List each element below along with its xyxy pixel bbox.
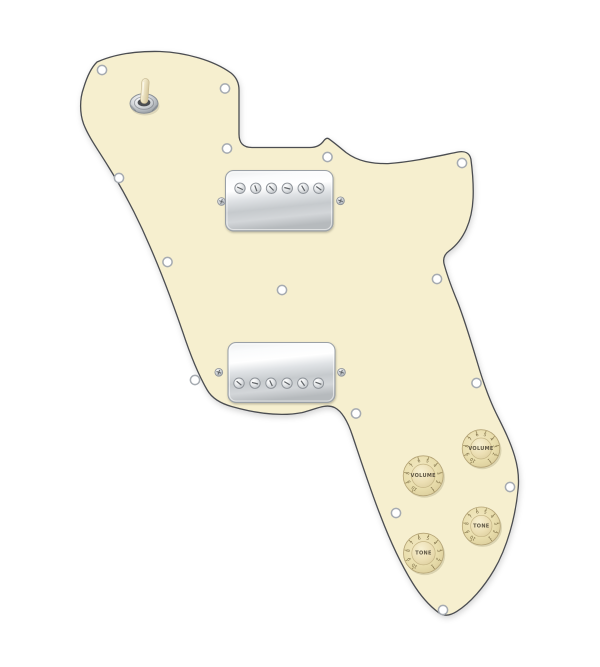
switch-lever-tip xyxy=(140,78,149,103)
screw-hole xyxy=(190,375,199,384)
pickup-cover xyxy=(226,171,334,232)
screw-hole xyxy=(391,508,400,517)
knob-label: TONE xyxy=(473,523,490,529)
screw-hole xyxy=(505,482,514,491)
screw-hole xyxy=(163,257,172,266)
pickup-mount-screw xyxy=(338,368,346,376)
screw-hole xyxy=(457,158,466,167)
switch-lever xyxy=(140,78,149,103)
screw-hole xyxy=(432,274,441,283)
pickup-cover xyxy=(228,343,335,403)
screw-hole xyxy=(220,84,229,93)
screw-hole xyxy=(114,173,123,182)
screw-hole xyxy=(438,605,447,614)
screw-hole xyxy=(323,152,332,161)
pickup-mount-screw xyxy=(218,198,226,206)
screw-hole xyxy=(351,409,360,418)
screw-hole xyxy=(277,285,286,294)
pickup-mount-screw xyxy=(337,197,345,205)
screw-hole xyxy=(222,144,231,153)
pickup-mount-screw xyxy=(215,368,223,376)
product-photo-pickguard: 12345678910VOLUME12345678910VOLUME123456… xyxy=(0,0,600,667)
knob-label: TONE xyxy=(415,551,432,557)
pickguard-body xyxy=(81,51,519,615)
pickguard-illustration: 12345678910VOLUME12345678910VOLUME123456… xyxy=(0,0,600,667)
screw-hole xyxy=(472,378,481,387)
pickup-neck xyxy=(218,171,345,232)
pickup-bridge xyxy=(215,343,345,403)
pickguard-layer: 12345678910VOLUME12345678910VOLUME123456… xyxy=(81,51,519,615)
knob-label: VOLUME xyxy=(411,473,437,479)
screw-hole xyxy=(97,65,106,74)
knob-label: VOLUME xyxy=(468,446,494,452)
